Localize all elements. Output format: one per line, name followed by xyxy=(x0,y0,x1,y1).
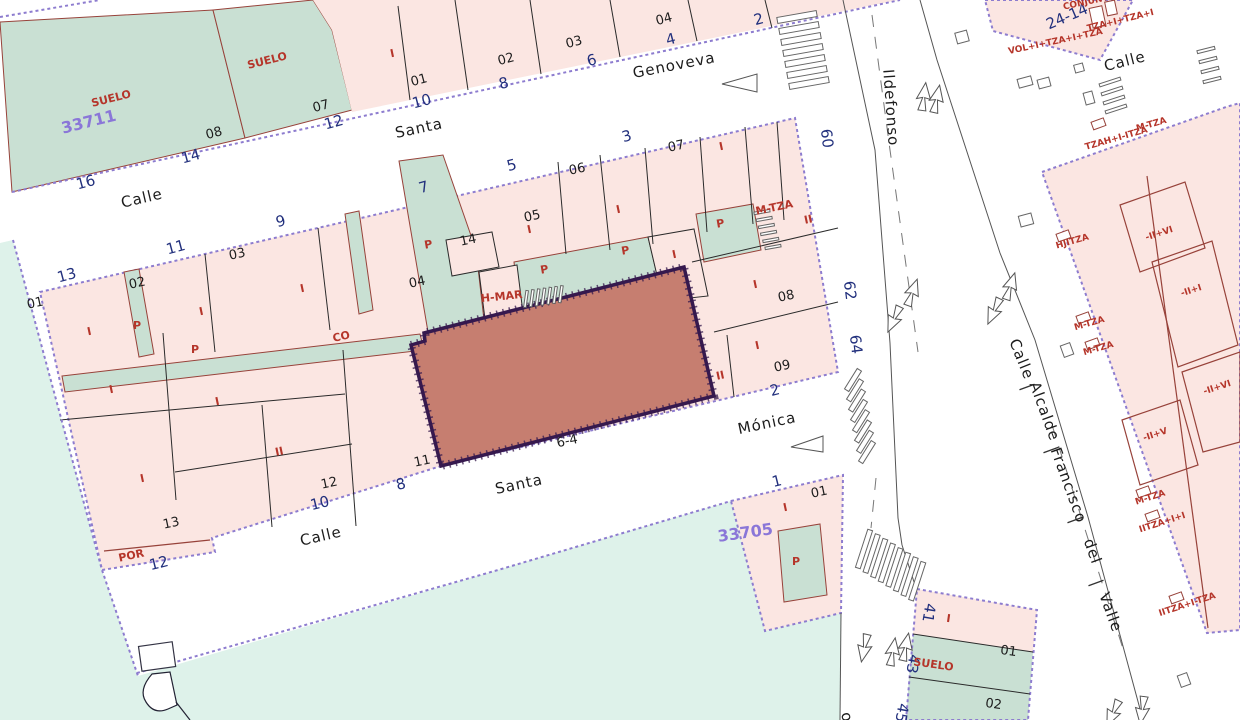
street-number: 62 xyxy=(840,280,860,301)
parcel-number: 02 xyxy=(984,696,1002,713)
street-number: 64 xyxy=(846,334,866,355)
land-use-label: P xyxy=(133,319,141,332)
street-number: 60 xyxy=(817,128,837,149)
road-marking-square xyxy=(955,30,969,44)
land-use-label: P xyxy=(191,343,199,356)
road-marking-square xyxy=(1074,63,1085,73)
small-structure xyxy=(138,642,175,671)
building-p xyxy=(778,524,827,602)
parcel-number: 01 xyxy=(999,643,1017,660)
land-use-label: P xyxy=(792,555,800,568)
cadastral-map-canvas[interactable]: CalleSantaGenovevaCalleSantaMónicaIldefo… xyxy=(0,0,1240,720)
street-number: 41 xyxy=(918,602,939,624)
cadastral-map-stage: CalleSantaGenovevaCalleSantaMónicaIldefo… xyxy=(0,0,1240,720)
street-number: 45 xyxy=(891,702,912,720)
